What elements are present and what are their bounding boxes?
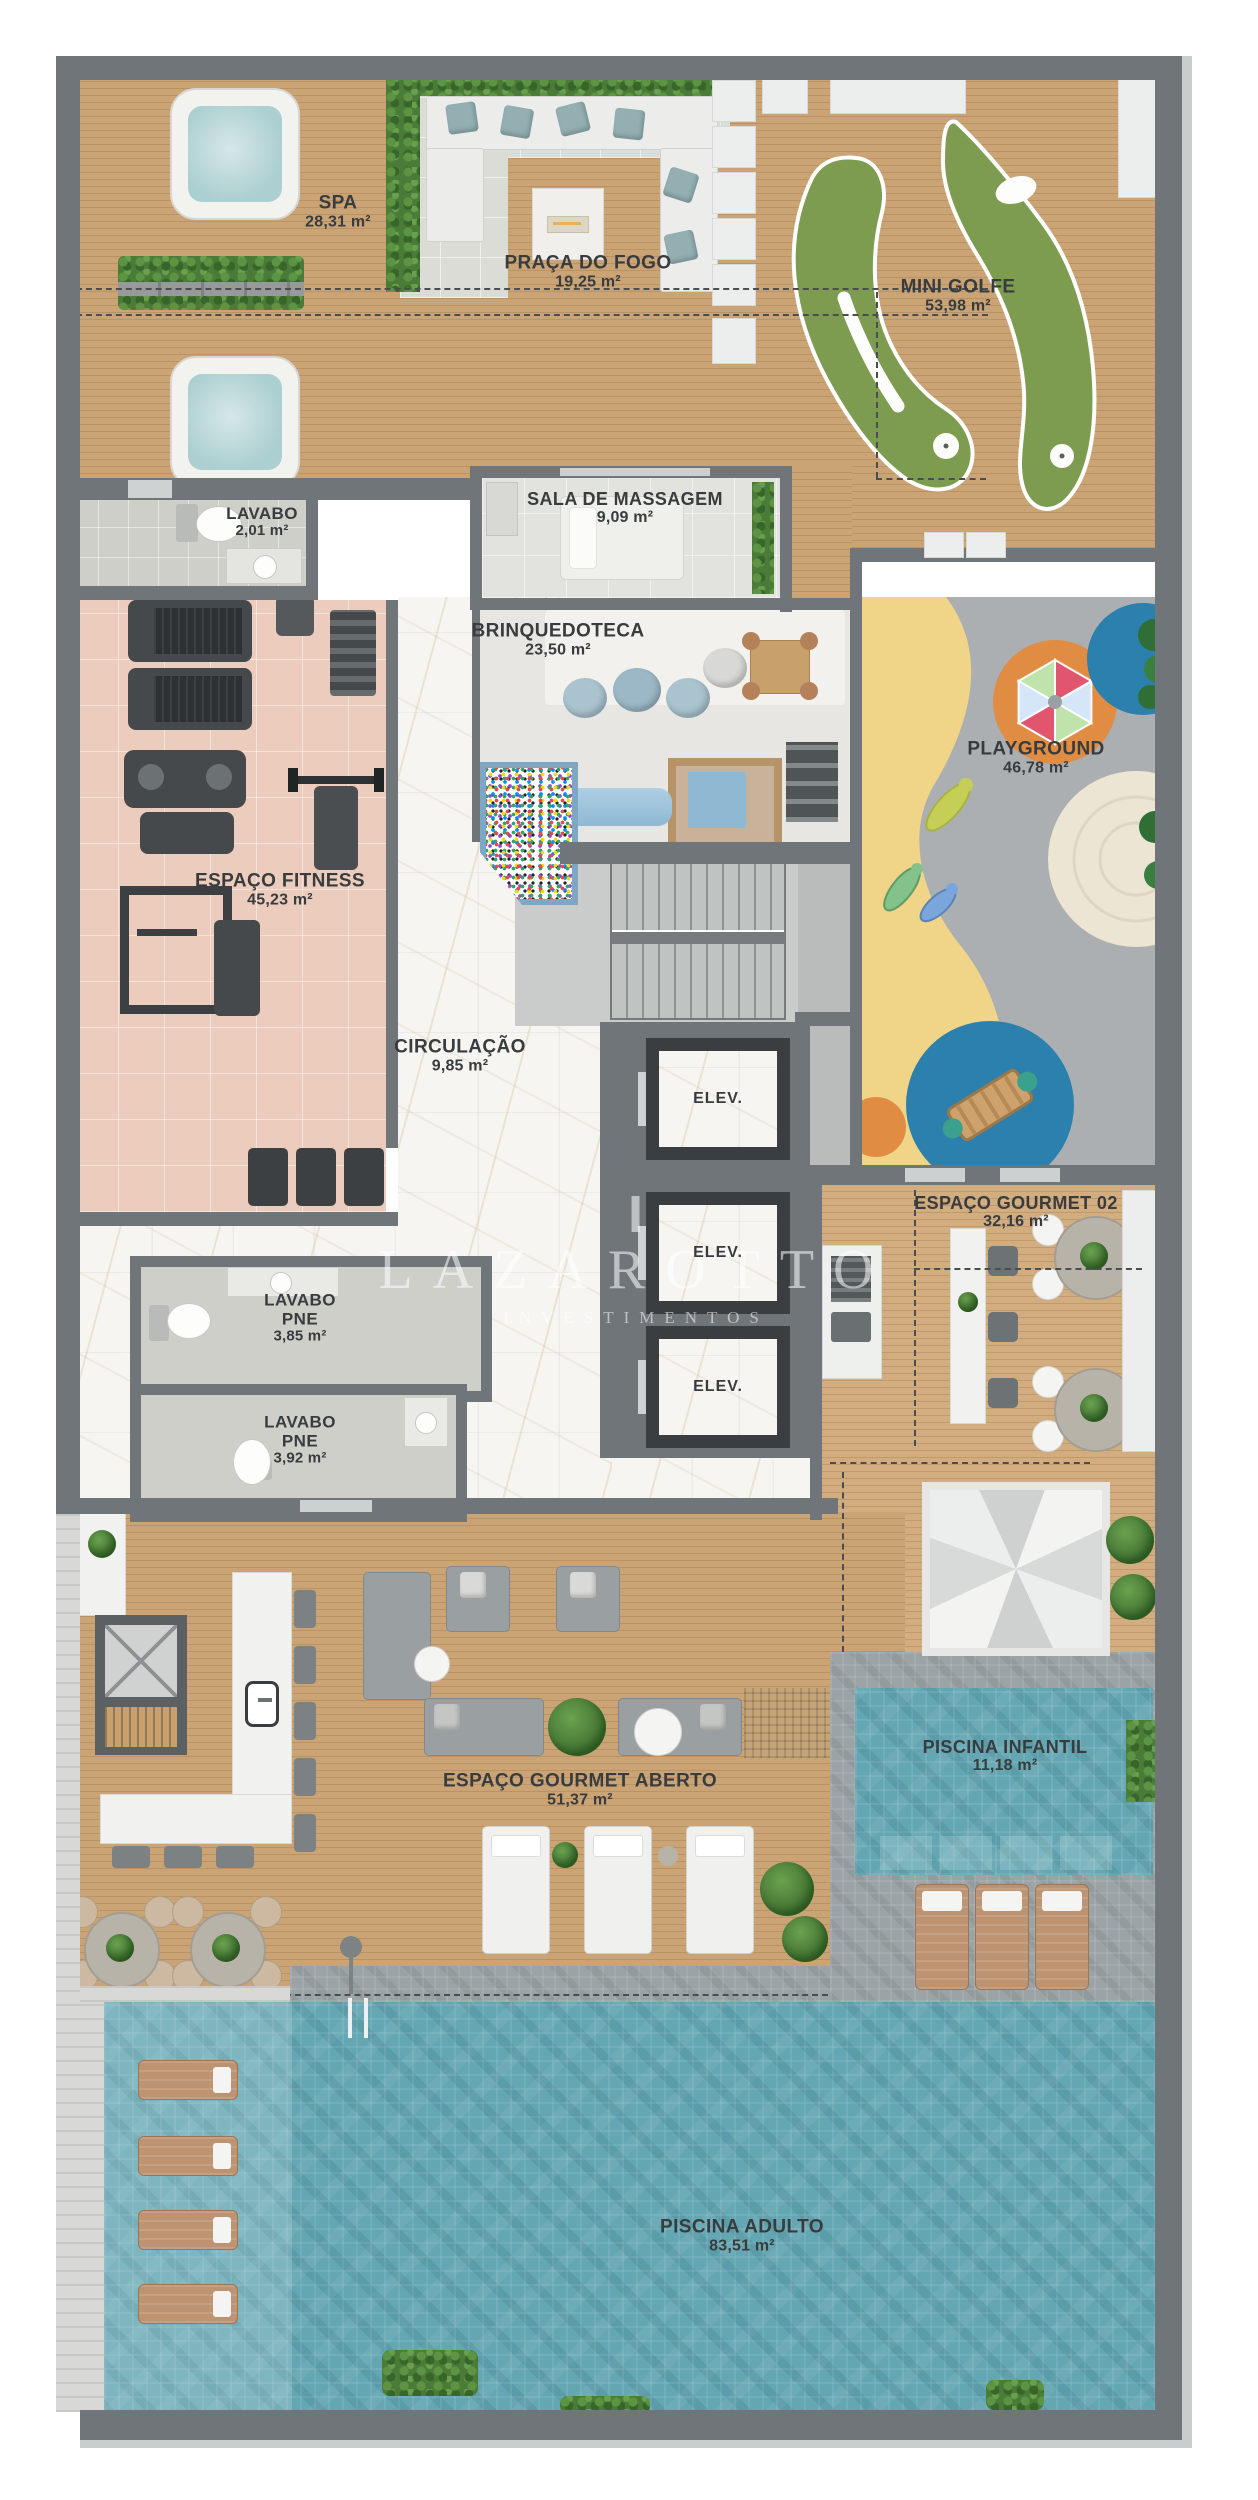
room-name: ELEV. [693, 1378, 743, 1396]
pool-edge-tile [290, 1966, 830, 2002]
room-name: PISCINA ADULTO [660, 2216, 824, 2237]
sofa-pillow [460, 1572, 486, 1598]
wood-lounger [975, 1884, 1029, 1990]
plant [1080, 1242, 1108, 1270]
lounger-pillow [213, 2217, 231, 2243]
treadmill [128, 668, 252, 730]
bar-stool [294, 1646, 316, 1684]
bean-bag [703, 648, 747, 688]
bar-stool [294, 1702, 316, 1740]
pool-coping-top [56, 1986, 290, 2002]
sofa-pillow [445, 101, 479, 135]
grill-station [95, 1615, 187, 1755]
climbing-mat [688, 772, 746, 828]
room-name: PISCINA INFANTIL [923, 1737, 1088, 1757]
slide [575, 788, 672, 826]
door-opening [300, 1500, 372, 1512]
room-label-mini-golfe: MINI GOLFE 53,98 m² [901, 276, 1016, 315]
in-pool-lounger [138, 2284, 238, 2324]
plant [548, 1698, 606, 1756]
bar-sink [245, 1681, 279, 1727]
room-area: 3,85 m² [252, 1329, 348, 1346]
room-area: 28,31 m² [305, 214, 371, 232]
wall-bottom [80, 2410, 1182, 2440]
dining-chair [988, 1378, 1018, 1408]
lounger-pillow [213, 2143, 231, 2169]
projection-line [914, 1268, 1142, 1270]
toilet-bowl [167, 1303, 211, 1339]
bar-stool [294, 1814, 316, 1852]
wall-fitness-south [56, 1212, 398, 1226]
pool-ladder [348, 1998, 352, 2038]
outdoor-shower-head [340, 1936, 362, 1958]
plant [212, 1934, 240, 1962]
gym-mat [296, 1148, 336, 1206]
glass-door [905, 1168, 965, 1182]
room-name: PRAÇA DO FOGO [504, 252, 671, 273]
rack-bar [137, 929, 197, 936]
projection-line [76, 314, 988, 316]
playground-graphic [862, 597, 1160, 1175]
elevator-door [638, 1360, 646, 1414]
room-name: SPA [305, 192, 371, 213]
room-area: 9,85 m² [394, 1058, 526, 1076]
planter-box [712, 172, 756, 214]
pool-step [1060, 1836, 1112, 1870]
pool-ladder [364, 1998, 368, 2038]
outdoor-shower-pipe [349, 1958, 353, 1994]
room-area: 32,16 m² [914, 1213, 1118, 1231]
room-name: PLAYGROUND [967, 738, 1104, 759]
jacuzzi-water [188, 374, 282, 470]
pool-hedge [382, 2350, 478, 2396]
barbell [288, 776, 384, 784]
room-area: 9,09 m² [527, 509, 723, 527]
room-label-brinquedoteca: BRINQUEDOTECA 23,50 m² [471, 620, 644, 659]
room-label-lavabo: LAVABO 2,01 m² [226, 504, 298, 540]
wall-massage-west [470, 466, 482, 610]
room-area: 11,18 m² [923, 1757, 1088, 1775]
room-area: 3,92 m² [252, 1451, 348, 1468]
lounger-pillow [695, 1835, 745, 1857]
wall-right [1155, 56, 1182, 2440]
plant [88, 1530, 116, 1558]
sink-basin [253, 555, 277, 579]
sofa-pillow [613, 108, 646, 141]
room-label-lavabo-pne-2: LAVABO PNE 3,92 m² [252, 1413, 348, 1468]
side-counter [78, 1512, 126, 1616]
gourmet02-island [950, 1228, 986, 1424]
room-name: ELEV. [693, 1244, 743, 1262]
projection-line [876, 478, 986, 480]
sink-vanity [226, 548, 302, 584]
plant [1110, 1574, 1156, 1620]
room-name: ESPAÇO GOURMET ABERTO [443, 1770, 717, 1791]
room-name: BRINQUEDOTECA [471, 620, 644, 641]
elevator-label: ELEV. [693, 1090, 743, 1108]
kids-chair [742, 632, 760, 650]
barbell-plate [374, 768, 384, 792]
bean-bag [666, 678, 710, 718]
in-pool-lounger [138, 2060, 238, 2100]
wall-playroom-south [560, 842, 852, 864]
room-label-spa: SPA 28,31 m² [305, 192, 371, 231]
weight-machine [124, 750, 246, 808]
lounger-pillow [982, 1891, 1022, 1911]
side-table [658, 1846, 678, 1866]
lounger-pillow [491, 1835, 541, 1857]
wall-massage-south [470, 598, 792, 610]
door-opening [128, 480, 172, 498]
elevator-label: ELEV. [693, 1378, 743, 1396]
kids-chair [800, 632, 818, 650]
room-name: MINI GOLFE [901, 276, 1016, 297]
fire-table [532, 188, 604, 260]
room-area: 46,78 m² [967, 760, 1104, 778]
pool-step [880, 1836, 932, 1870]
elevator-door [638, 1072, 646, 1126]
cable-tower [214, 920, 260, 1016]
dining-chair [988, 1312, 1018, 1342]
room-label-lavabo-pne-1: LAVABO PNE 3,85 m² [252, 1291, 348, 1346]
room-label-circulacao: CIRCULAÇÃO 9,85 m² [394, 1036, 526, 1075]
projection-line [876, 292, 878, 478]
planter-box [712, 218, 756, 260]
room-name: ESPAÇO GOURMET 02 [914, 1193, 1118, 1213]
planter-box [712, 126, 756, 168]
coffee-table [414, 1646, 450, 1682]
service-shaft-2 [808, 1022, 850, 1165]
coffee-table [634, 1708, 682, 1756]
planter-box [712, 318, 756, 364]
planter-box [966, 532, 1006, 558]
golf-hole-pin [944, 444, 949, 449]
room-name: ESPAÇO FITNESS [195, 870, 365, 891]
room-label-espaco-gourmet-aberto: ESPAÇO GOURMET ABERTO 51,37 m² [443, 1770, 717, 1809]
developer-watermark: LAZAROTTO INVESTIMENTOS [379, 1196, 894, 1328]
bar-counter-return [100, 1794, 292, 1844]
massage-cabinet [486, 482, 518, 536]
outer-edge-right [1182, 56, 1192, 2448]
wall-deck-north [56, 1498, 838, 1514]
wall-top [56, 56, 1182, 80]
wood-lounger [915, 1884, 969, 1990]
room-area: 51,37 m² [443, 1792, 717, 1810]
wall-playroom-north-east [792, 598, 852, 610]
fire-burner [547, 216, 589, 233]
room-name: LAVABO PNE [252, 1413, 348, 1451]
jacuzzi [170, 88, 300, 220]
room-name: LAVABO [226, 504, 298, 523]
grill-top [105, 1625, 177, 1697]
plant [782, 1916, 828, 1962]
pool-hedge [986, 2380, 1044, 2410]
treadmill-belt [154, 676, 242, 722]
edge-left-lower [56, 1505, 80, 2412]
gym-bench [276, 596, 314, 636]
gym-mat [248, 1148, 288, 1206]
spa-hedge-vertical [386, 76, 420, 292]
machine-seat [206, 764, 232, 790]
sun-lounger [686, 1826, 754, 1954]
lounger-pillow [213, 2291, 231, 2317]
floor-plan: SPA 28,31 m² PRAÇA DO FOGO 19,25 m² MINI… [0, 0, 1258, 2500]
lounger-pillow [593, 1835, 643, 1857]
kids-chair [742, 682, 760, 700]
jacuzzi [170, 356, 300, 488]
staircase [610, 856, 786, 1020]
bar-stool [216, 1846, 254, 1868]
room-label-piscina-adulto: PISCINA ADULTO 83,51 m² [660, 2216, 824, 2255]
kids-chair [800, 682, 818, 700]
plant [1106, 1516, 1154, 1564]
plant [1080, 1394, 1108, 1422]
in-pool-lounger [138, 2136, 238, 2176]
wall-massage-east [780, 466, 792, 612]
room-name: ELEV. [693, 1090, 743, 1108]
weight-machine [140, 812, 234, 854]
room-label-piscina-infantil: PISCINA INFANTIL 11,18 m² [923, 1737, 1088, 1775]
sun-lounger [482, 1826, 550, 1954]
machine-seat [138, 764, 164, 790]
wall-spa-south [56, 478, 482, 500]
dining-chair [988, 1246, 1018, 1276]
faucet [258, 1698, 272, 1702]
room-name: SALA DE MASSAGEM [527, 489, 723, 509]
lounge-sofa [363, 1572, 431, 1700]
treadmill [128, 600, 252, 662]
watermark-logo-mark [632, 1196, 640, 1232]
room-area: 53,98 m² [901, 298, 1016, 316]
planter-box [712, 264, 756, 306]
lounger-pillow [922, 1891, 962, 1911]
sofa-pillow [700, 1704, 726, 1730]
bench-press-bench [314, 786, 358, 870]
lounger-pillow [1042, 1891, 1082, 1911]
sun-lounger [584, 1826, 652, 1954]
plant [552, 1842, 578, 1868]
bar-stool [294, 1758, 316, 1796]
room-label-espaco-gourmet-02: ESPAÇO GOURMET 02 32,16 m² [914, 1193, 1118, 1231]
outer-edge-bottom [80, 2440, 1192, 2448]
dumbbell-rack [330, 610, 376, 696]
room-label-sala-de-massagem: SALA DE MASSAGEM 9,09 m² [527, 489, 723, 527]
planter-box [712, 80, 756, 122]
poolside-planter [1126, 1720, 1156, 1802]
sofa-pillow [500, 105, 535, 140]
wall-lavabo-south [56, 586, 318, 600]
wall-bench [1122, 1190, 1158, 1452]
pool-step [1000, 1836, 1052, 1870]
projection-line [830, 1462, 1090, 1464]
fire-plaza-sofa-left [426, 148, 484, 242]
plant [958, 1292, 978, 1312]
room-area: 23,50 m² [471, 642, 644, 660]
planter-box [924, 532, 964, 558]
watermark-brand: LAZAROTTO [379, 1242, 894, 1298]
room-area: 19,25 m² [504, 274, 671, 292]
treadmill-belt [154, 608, 242, 654]
projection-line [842, 1472, 844, 1652]
room-label-espaco-fitness: ESPAÇO FITNESS 45,23 m² [195, 870, 365, 909]
glass-door [1000, 1168, 1060, 1182]
bar-stool [294, 1590, 316, 1628]
room-name: CIRCULAÇÃO [394, 1036, 526, 1057]
wall-playground-west [850, 562, 862, 1175]
in-pool-lounger [138, 2210, 238, 2250]
room-area: 2,01 m² [226, 523, 298, 540]
wall-lavabo-east [306, 478, 318, 600]
jacuzzi-water [188, 106, 282, 202]
flame-strip [553, 222, 581, 225]
wicker-rug [744, 1688, 830, 1758]
plant [106, 1934, 134, 1962]
room-area: 83,51 m² [660, 2238, 824, 2256]
glass-door [560, 468, 710, 476]
sofa-pillow [570, 1572, 596, 1598]
sink-basin [415, 1412, 437, 1434]
room-label-playground: PLAYGROUND 46,78 m² [967, 738, 1104, 777]
bean-bag [563, 678, 607, 718]
room-area: 45,23 m² [195, 892, 365, 910]
plant [760, 1862, 814, 1916]
elevator-label: ELEV. [693, 1244, 743, 1262]
stair-handrail [612, 930, 784, 944]
lounger-pillow [213, 2067, 231, 2093]
wall-left [56, 56, 80, 1505]
bean-bag [613, 668, 661, 712]
room-label-praca-do-fogo: PRAÇA DO FOGO 19,25 m² [504, 252, 671, 291]
pool-coping-left [80, 2002, 104, 2412]
wood-lounger [1035, 1884, 1089, 1990]
pool-step [940, 1836, 992, 1870]
wall-landing [795, 1012, 862, 1026]
room-name: LAVABO PNE [252, 1291, 348, 1329]
barbell-plate [288, 768, 298, 792]
carousel-hub [1048, 695, 1062, 709]
toilet-tank [176, 504, 198, 542]
grill-grate [105, 1707, 177, 1747]
daybed-parasol [922, 1482, 1110, 1656]
watermark-tagline: INVESTIMENTOS [379, 1308, 894, 1328]
bar-stool [164, 1846, 202, 1868]
golf-hole-pin [1060, 454, 1065, 459]
toilet-tank [149, 1305, 169, 1341]
bar-stool [112, 1846, 150, 1868]
sink-vanity [404, 1397, 448, 1447]
wall-gourmet02-north [810, 1165, 1155, 1185]
toy-shelf [786, 742, 838, 822]
sofa-pillow [434, 1704, 460, 1730]
